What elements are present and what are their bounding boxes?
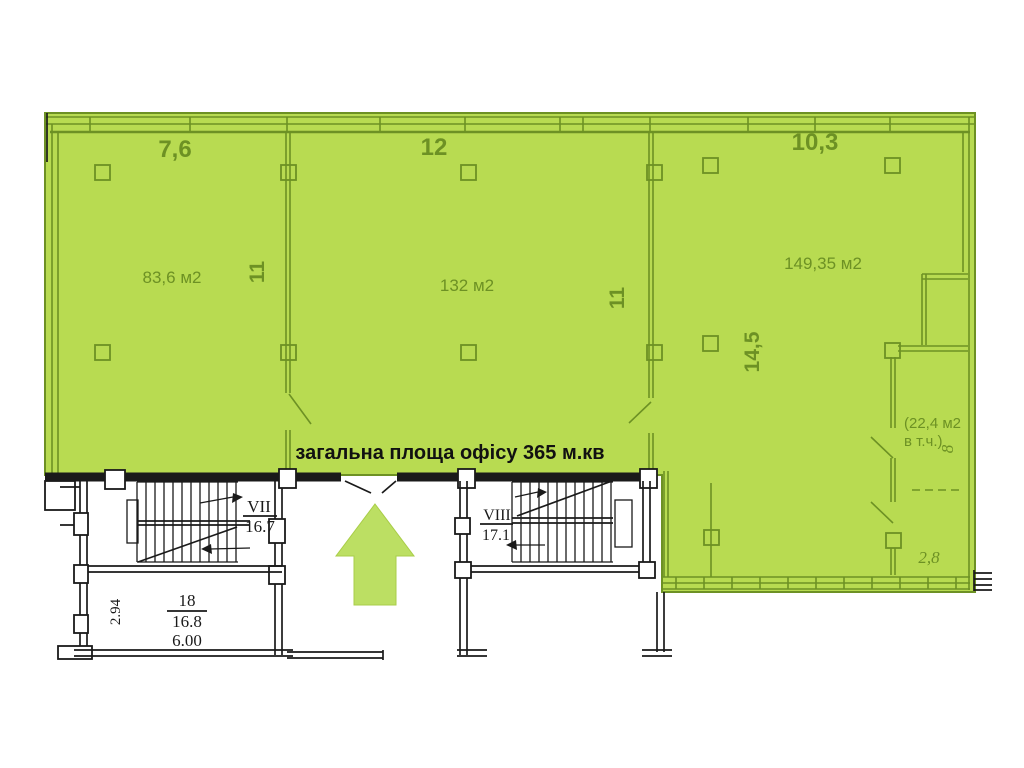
dim-label-top-middle: 12 xyxy=(421,134,448,161)
stairwell-left xyxy=(127,482,250,562)
dim-label-depth-right: 14,5 xyxy=(741,331,764,372)
entrance-direction-arrow xyxy=(336,504,414,605)
area-label-room-middle: 132 м2 xyxy=(440,276,494,295)
stairwell-left-numeral: VII xyxy=(247,497,271,516)
dim-label-sub-depth: 8 xyxy=(938,444,957,453)
dim-label-depth-1: 11 xyxy=(246,261,269,284)
lower-room-area: 16.8 xyxy=(172,612,202,631)
lower-room-width: 6.00 xyxy=(172,631,202,650)
stair-direction-arrow-up xyxy=(232,493,243,503)
stair-run-line xyxy=(138,527,237,562)
corridor-door-leaf-left xyxy=(345,481,371,493)
stair-run-line xyxy=(517,481,612,516)
floor-plan-drawing: 7,6 12 10,3 11 11 14,5 83,6 м2 132 м2 14… xyxy=(0,0,1024,768)
area-label-sub-room-line2: в т.ч.) xyxy=(904,433,943,450)
dim-label-top-right: 10,3 xyxy=(792,129,839,156)
stair-direction-arrow-down xyxy=(201,544,212,554)
area-label-room-right: 149,35 м2 xyxy=(784,254,862,273)
stair-direction-arrow-up xyxy=(537,488,547,498)
wall-notch xyxy=(45,481,75,510)
dim-label-depth-2: 11 xyxy=(606,287,629,310)
stairwell-right xyxy=(506,481,632,562)
floor-plan-page: 7,6 12 10,3 11 11 14,5 83,6 м2 132 м2 14… xyxy=(0,0,1024,768)
lower-room-number: 18 xyxy=(179,591,196,610)
corridor-door-leaf-right xyxy=(382,481,396,493)
dim-label-sub-width: 2,8 xyxy=(918,548,940,567)
stairwell-right-area: 17.1 xyxy=(482,527,510,544)
stairwell-right-numeral: VIII xyxy=(483,507,511,524)
dim-label-top-left: 7,6 xyxy=(158,136,191,163)
area-label-sub-room-line1: (22,4 м2 xyxy=(904,415,961,432)
area-label-room-left: 83,6 м2 xyxy=(143,268,202,287)
lower-room-height: 2.94 xyxy=(108,598,124,625)
stairwell-left-area: 16.7 xyxy=(245,517,275,536)
total-area-banner: загальна площа офісу 365 м.кв xyxy=(295,442,604,464)
